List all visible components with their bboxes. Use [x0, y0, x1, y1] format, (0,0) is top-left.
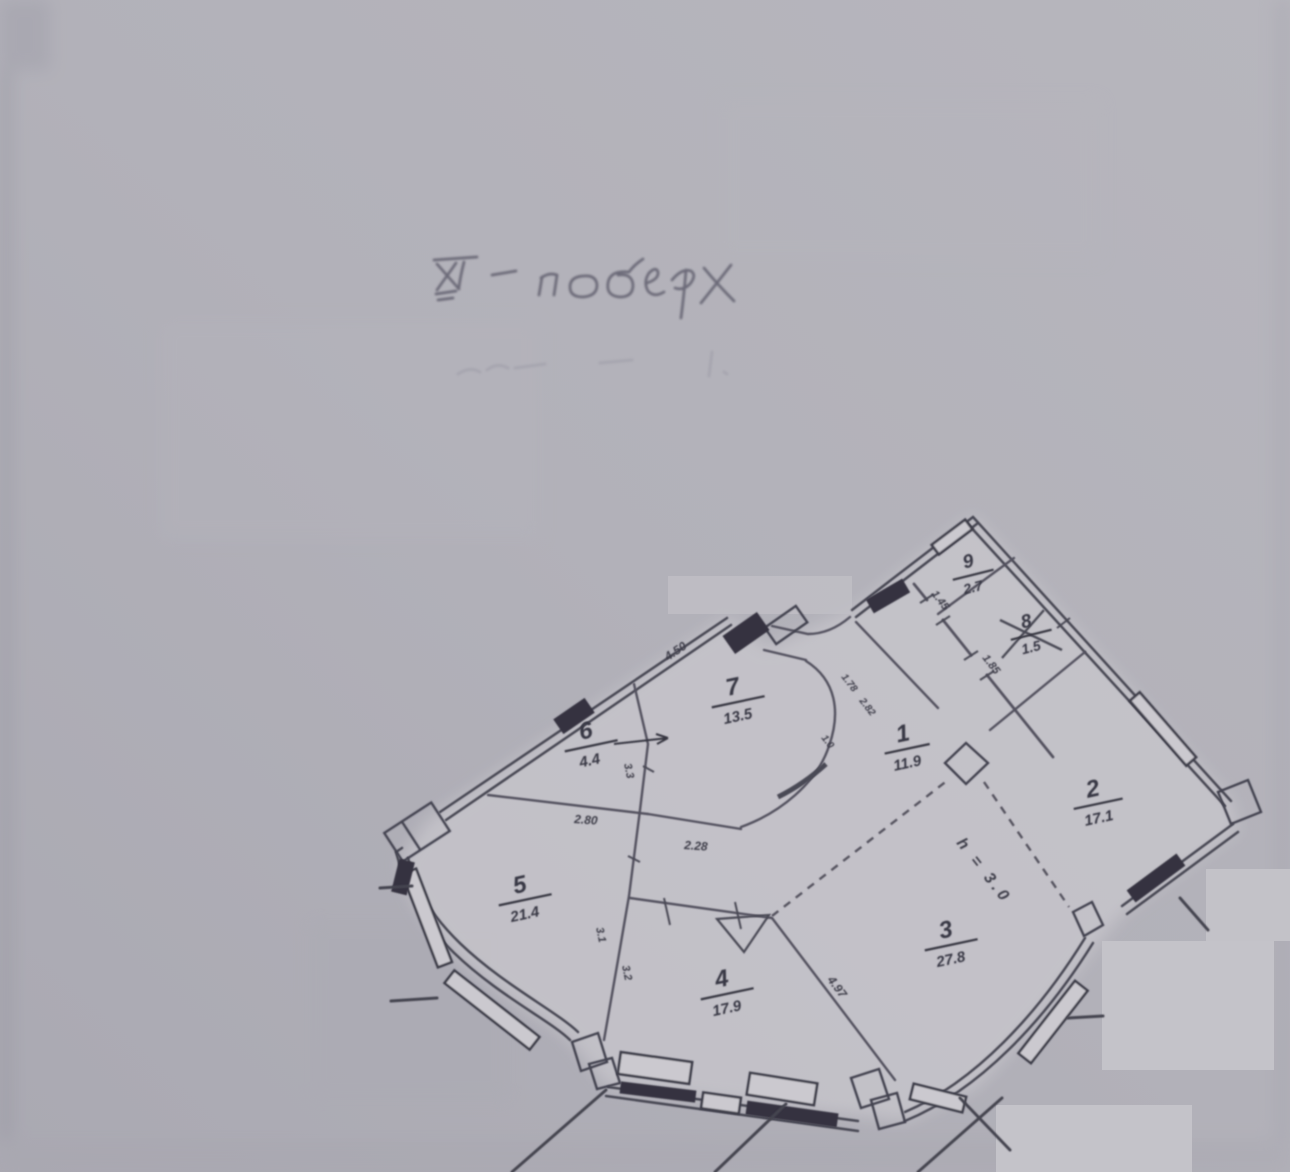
svg-text:2.80: 2.80 [573, 812, 599, 828]
svg-text:2.28: 2.28 [683, 838, 709, 854]
